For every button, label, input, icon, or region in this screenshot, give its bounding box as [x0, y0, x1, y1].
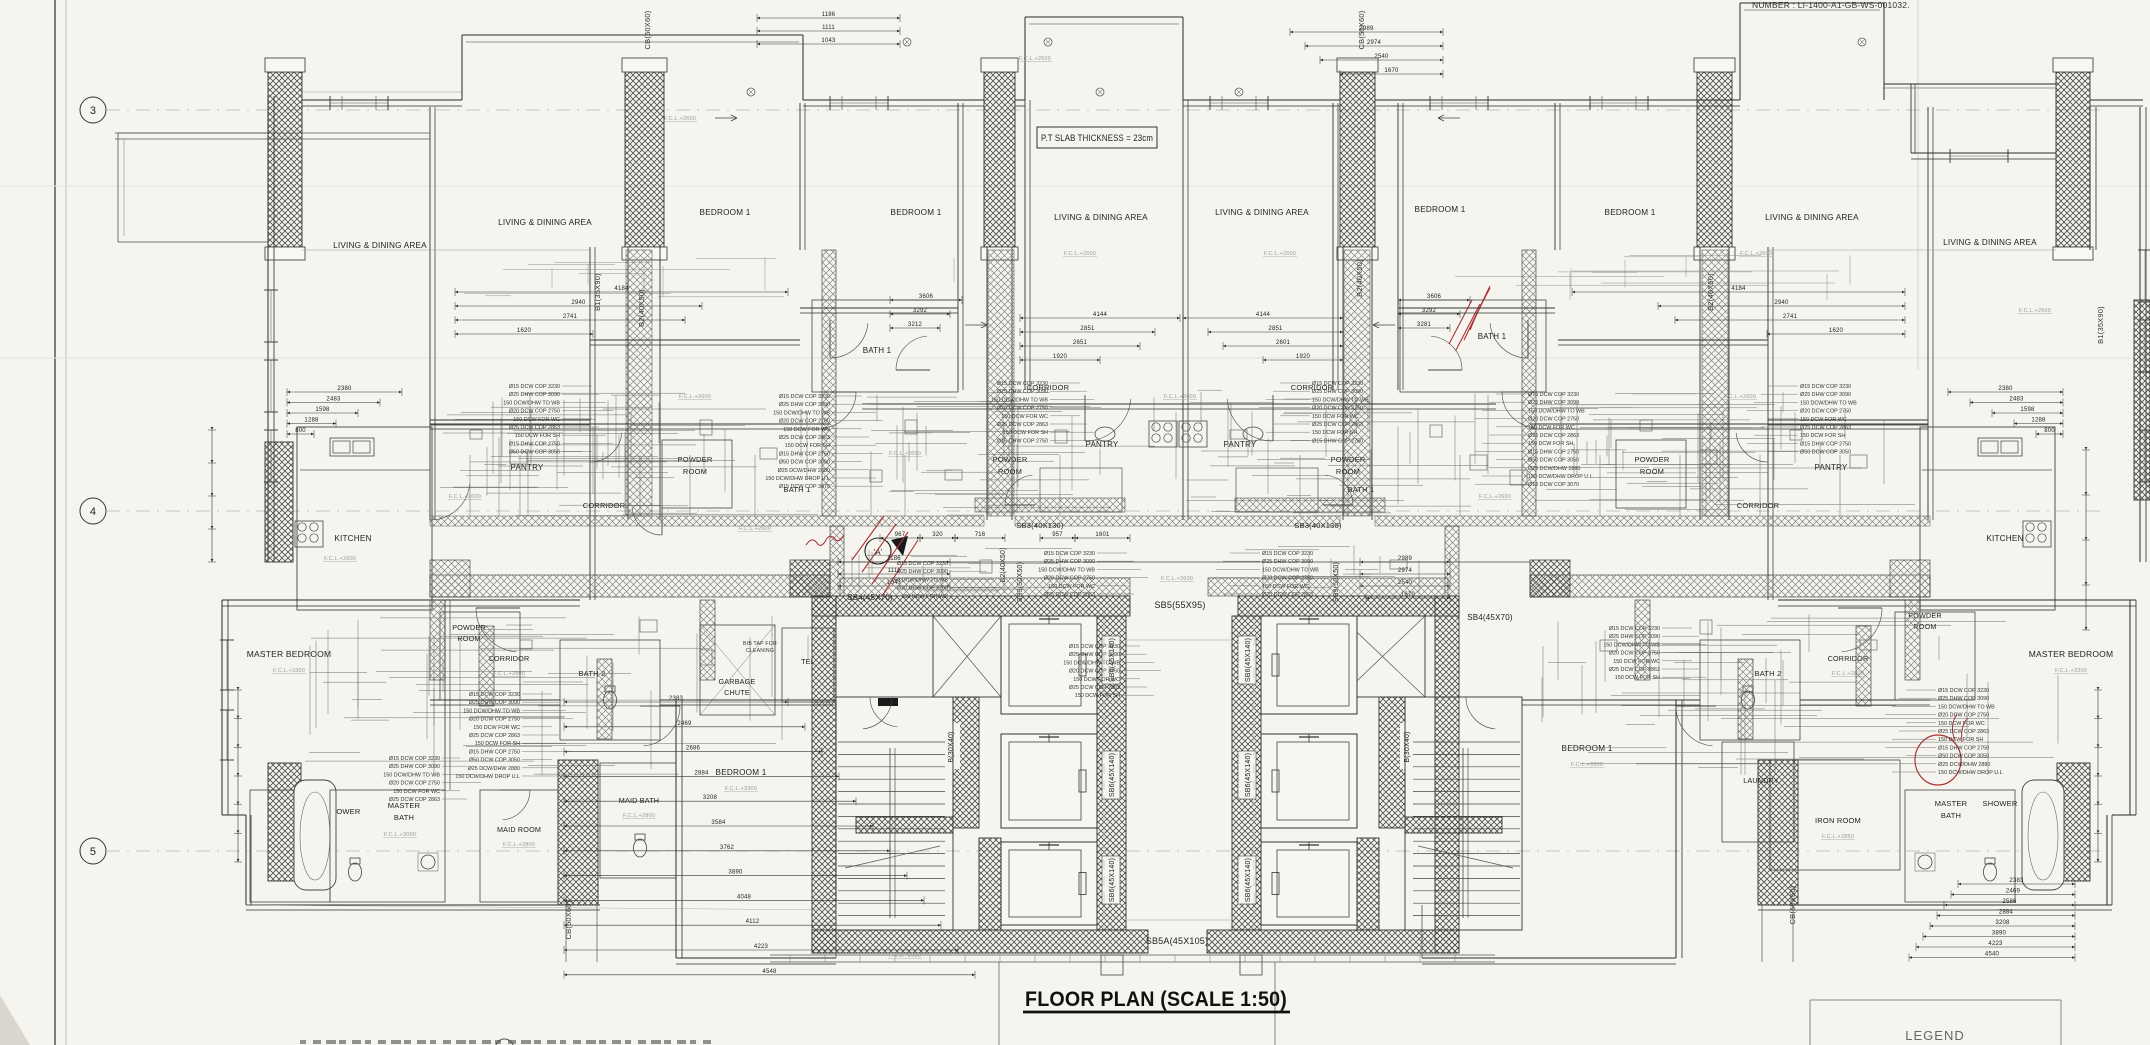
svg-text:3208: 3208	[1995, 920, 2010, 926]
svg-text:LAUNDRY: LAUNDRY	[1743, 776, 1779, 785]
svg-text:BEDROOM 1: BEDROOM 1	[1415, 205, 1466, 214]
svg-text:Ø25 DCW/DHW 2880: Ø25 DCW/DHW 2880	[1528, 466, 1580, 472]
svg-text:Ø25 DCW COP 2863: Ø25 DCW COP 2863	[1312, 422, 1363, 428]
svg-text:SB5(55X95): SB5(55X95)	[1154, 600, 1205, 610]
svg-text:150 DCW/DHW DROP U.L: 150 DCW/DHW DROP U.L	[1528, 474, 1593, 480]
svg-text:Ø15 DCW COP 3230: Ø15 DCW COP 3230	[997, 381, 1048, 387]
svg-text:150 DCW FOR SH: 150 DCW FOR SH	[515, 433, 560, 439]
svg-text:BATH: BATH	[394, 813, 414, 822]
svg-text:4048: 4048	[737, 894, 752, 900]
svg-text:150 DCW/DHW TO WB: 150 DCW/DHW TO WB	[1528, 408, 1585, 414]
svg-text:F.C.L.+2600: F.C.L.+2600	[739, 526, 771, 532]
svg-text:Ø20 DCW COP 2750: Ø20 DCW COP 2750	[1069, 669, 1120, 675]
svg-text:F.C.L.+2600: F.C.L.+2600	[1724, 394, 1756, 400]
svg-text:Ø15 DCW COP 3070: Ø15 DCW COP 3070	[1528, 482, 1579, 488]
svg-text:Ø25 DCW COP 2863: Ø25 DCW COP 2863	[1044, 592, 1095, 598]
svg-text:B1(35X90): B1(35X90)	[2096, 306, 2105, 344]
svg-text:4223: 4223	[754, 944, 769, 950]
svg-text:F.C.L.+3000: F.C.L.+3000	[384, 832, 416, 838]
svg-text:2741: 2741	[563, 314, 578, 320]
svg-text:Ø15 DHW COP 2750: Ø15 DHW COP 2750	[997, 438, 1048, 444]
svg-text:150 DCW/DHW TO WB: 150 DCW/DHW TO WB	[1312, 397, 1369, 403]
svg-text:Ø25 DCW COP 2863: Ø25 DCW COP 2863	[469, 733, 520, 739]
svg-text:1620: 1620	[517, 328, 532, 334]
svg-text:B2(40X50): B2(40X50)	[637, 289, 646, 327]
svg-text:CB(50X60): CB(50X60)	[643, 10, 652, 49]
svg-text:2989: 2989	[1359, 26, 1374, 32]
svg-text:150 DCW/DHW DROP U.L: 150 DCW/DHW DROP U.L	[1938, 770, 2003, 776]
svg-text:150 DCW/DHW TO WB: 150 DCW/DHW TO WB	[1063, 660, 1120, 666]
svg-text:CHUTE: CHUTE	[724, 688, 750, 697]
svg-text:Ø25 DHW COP 3090: Ø25 DHW COP 3090	[1528, 400, 1579, 406]
svg-text:716: 716	[975, 532, 986, 538]
svg-text:150 DCW/DHW TO WB: 150 DCW/DHW TO WB	[891, 577, 948, 583]
svg-text:Ø15 DCW COP 3230: Ø15 DCW COP 3230	[1069, 644, 1120, 650]
svg-text:Ø15 DCW COP 3230: Ø15 DCW COP 3230	[1312, 381, 1363, 387]
svg-text:Ø15 DCW COP 3070: Ø15 DCW COP 3070	[779, 484, 830, 490]
svg-text:3606: 3606	[919, 294, 934, 300]
svg-text:4184: 4184	[1731, 286, 1746, 292]
svg-text:150 DCW FOR WC: 150 DCW FOR WC	[901, 594, 948, 600]
svg-text:B(30X40): B(30X40)	[948, 731, 955, 762]
svg-text:Ø15 DHW COP 2750: Ø15 DHW COP 2750	[1938, 745, 1989, 751]
svg-text:MAID BATH: MAID BATH	[619, 796, 659, 805]
svg-text:F.C.L.+2600: F.C.L.+2600	[1161, 576, 1193, 582]
svg-text:Ø25 DHW COP 3090: Ø25 DHW COP 3090	[997, 389, 1048, 395]
svg-text:BEDROOM 1: BEDROOM 1	[1562, 744, 1613, 753]
svg-text:CB(50X60): CB(50X60)	[1788, 885, 1797, 924]
svg-text:1598: 1598	[315, 407, 330, 413]
svg-text:Ø15 DCW COP 3230: Ø15 DCW COP 3230	[1609, 626, 1660, 632]
svg-text:2540: 2540	[1374, 54, 1389, 60]
svg-text:957: 957	[1052, 532, 1063, 538]
svg-text:F.C.L.+2850: F.C.L.+2850	[1822, 834, 1854, 840]
svg-text:CORRIDOR: CORRIDOR	[583, 501, 626, 510]
svg-text:1601: 1601	[1095, 532, 1110, 538]
svg-text:1288: 1288	[304, 418, 319, 424]
svg-text:1186: 1186	[822, 12, 836, 18]
svg-text:320: 320	[932, 532, 943, 538]
svg-text:Ø25 DCW/DHW 2880: Ø25 DCW/DHW 2880	[1938, 762, 1990, 768]
svg-text:SB3(40X130): SB3(40X130)	[1294, 521, 1342, 530]
svg-text:LEGEND: LEGEND	[1905, 1028, 1964, 1043]
svg-text:Ø25 DHW COP 3090: Ø25 DHW COP 3090	[1609, 634, 1660, 640]
svg-text:150 DCW FOR SH: 150 DCW FOR SH	[785, 443, 830, 449]
svg-text:Ø20 DCW COP 2750: Ø20 DCW COP 2750	[1800, 409, 1851, 415]
svg-text:Ø25 DCW COP 2863: Ø25 DCW COP 2863	[997, 422, 1048, 428]
svg-text:BATH 1: BATH 1	[863, 346, 892, 355]
svg-text:Ø50 DCW COP 3050: Ø50 DCW COP 3050	[1528, 458, 1579, 464]
svg-text:F.C.L.+2600: F.C.L.+2600	[2019, 308, 2051, 314]
svg-text:SB6(45X140): SB6(45X140)	[1109, 753, 1116, 797]
svg-text:150 DCW FOR WC: 150 DCW FOR WC	[393, 789, 440, 795]
svg-text:2483: 2483	[2009, 397, 2024, 403]
svg-text:4112: 4112	[746, 919, 760, 925]
svg-text:3281: 3281	[1417, 322, 1432, 328]
svg-text:Ø25 DHW COP 3090: Ø25 DHW COP 3090	[897, 569, 948, 575]
svg-text:3890: 3890	[728, 870, 743, 876]
svg-text:3208: 3208	[703, 795, 718, 801]
svg-text:3212: 3212	[908, 322, 923, 328]
svg-text:1598: 1598	[2020, 407, 2035, 413]
svg-text:BEDROOM 1: BEDROOM 1	[1605, 208, 1656, 217]
svg-text:MASTER: MASTER	[1935, 799, 1968, 808]
svg-text:IRON ROOM: IRON ROOM	[1815, 816, 1861, 825]
svg-text:150 DCW FOR WC: 150 DCW FOR WC	[1528, 425, 1575, 431]
svg-text:2974: 2974	[1367, 40, 1382, 46]
svg-text:Ø15 DHW COP 2750: Ø15 DHW COP 2750	[509, 441, 560, 447]
svg-text:Ø15 DCW COP 3230: Ø15 DCW COP 3230	[1262, 551, 1313, 557]
svg-text:POWDER: POWDER	[678, 455, 713, 464]
svg-text:150 DCW FOR WC: 150 DCW FOR WC	[1312, 414, 1359, 420]
svg-text:F.C.L.+3300: F.C.L.+3300	[725, 786, 757, 792]
svg-text:SB5A(45X105): SB5A(45X105)	[1146, 936, 1208, 946]
svg-text:MASTER BEDROOM: MASTER BEDROOM	[2029, 649, 2114, 659]
svg-text:150 DCW/DHW TO WB: 150 DCW/DHW TO WB	[1262, 567, 1319, 573]
svg-text:BEDROOM 1: BEDROOM 1	[716, 768, 767, 777]
svg-text:Ø25 DHW COP 3090: Ø25 DHW COP 3090	[1800, 392, 1851, 398]
svg-text:BEDROOM 1: BEDROOM 1	[891, 208, 942, 217]
svg-text:LIVING & DINING AREA: LIVING & DINING AREA	[1054, 213, 1148, 222]
svg-text:150 DCW FOR SH: 150 DCW FOR SH	[1800, 433, 1845, 439]
svg-text:ROOM: ROOM	[1640, 467, 1664, 476]
svg-text:2483: 2483	[326, 397, 341, 403]
svg-text:150 DCW FOR WC: 150 DCW FOR WC	[1073, 677, 1120, 683]
svg-text:2383: 2383	[669, 696, 684, 702]
svg-text:2651: 2651	[1073, 340, 1088, 346]
svg-text:F.C.L.+2600: F.C.L.+2600	[1019, 56, 1051, 62]
svg-text:Ø25 DHW COP 3090: Ø25 DHW COP 3090	[389, 764, 440, 770]
svg-text:2989: 2989	[1398, 556, 1413, 562]
svg-text:150 DCW FOR SH: 150 DCW FOR SH	[1528, 441, 1573, 447]
svg-text:Ø20 DCW COP 2750: Ø20 DCW COP 2750	[509, 409, 560, 415]
svg-text:4144: 4144	[1256, 312, 1271, 318]
svg-text:F.C.L.+3300: F.C.L.+3300	[1571, 762, 1603, 768]
svg-text:4223: 4223	[1988, 941, 2003, 947]
svg-text:Ø25 DCW COP 2863: Ø25 DCW COP 2863	[1262, 592, 1313, 598]
svg-text:LIVING & DINING AREA: LIVING & DINING AREA	[1765, 213, 1859, 222]
svg-text:Ø25 DCW COP 2863: Ø25 DCW COP 2863	[1528, 433, 1579, 439]
svg-text:CORRIDOR: CORRIDOR	[489, 654, 530, 663]
svg-text:4548: 4548	[762, 969, 777, 975]
svg-text:3762: 3762	[720, 845, 735, 851]
svg-text:Ø20 DCW COP 2750: Ø20 DCW COP 2750	[1938, 713, 1989, 719]
svg-text:F.C.L.+3300: F.C.L.+3300	[2055, 668, 2087, 674]
svg-text:1043: 1043	[821, 38, 836, 44]
svg-text:Ø25 DHW COP 3090: Ø25 DHW COP 3090	[779, 402, 830, 408]
svg-text:Ø25 DCW COP 2863: Ø25 DCW COP 2863	[1609, 667, 1660, 673]
svg-text:1111: 1111	[822, 25, 835, 31]
svg-text:Ø15 DCW COP 3230: Ø15 DCW COP 3230	[1528, 392, 1579, 398]
svg-text:3606: 3606	[1427, 294, 1442, 300]
svg-text:2380: 2380	[337, 386, 352, 392]
svg-text:150 DCW FOR WC: 150 DCW FOR WC	[1048, 584, 1095, 590]
svg-text:LIVING & DINING AREA: LIVING & DINING AREA	[1943, 238, 2037, 247]
svg-text:PANTRY: PANTRY	[1086, 440, 1119, 449]
svg-text:POWDER: POWDER	[1635, 455, 1670, 464]
svg-text:Ø25 DCW COP 2863: Ø25 DCW COP 2863	[1069, 685, 1120, 691]
svg-text:P.T SLAB THICKNESS = 23cm: P.T SLAB THICKNESS = 23cm	[1041, 133, 1153, 144]
svg-text:BATH: BATH	[1941, 811, 1961, 820]
svg-text:2469: 2469	[2006, 889, 2021, 895]
svg-text:Ø15 DCW COP 3230: Ø15 DCW COP 3230	[897, 561, 948, 567]
svg-text:FLOOR PLAN (SCALE 1:50): FLOOR PLAN (SCALE 1:50)	[1025, 987, 1287, 1011]
svg-text:2380: 2380	[1998, 386, 2013, 392]
svg-text:4540: 4540	[1985, 952, 2000, 958]
svg-text:4184: 4184	[614, 286, 629, 292]
svg-text:967: 967	[895, 532, 906, 538]
svg-text:Ø15 DHW COP 2750: Ø15 DHW COP 2750	[469, 749, 520, 755]
svg-text:Ø25 DCW COP 2863: Ø25 DCW COP 2863	[1938, 729, 1989, 735]
svg-text:SB6(45X140): SB6(45X140)	[1245, 753, 1252, 797]
svg-text:150 DCW/DHW TO WB: 150 DCW/DHW TO WB	[503, 400, 560, 406]
svg-text:CB(50X60): CB(50X60)	[564, 900, 573, 939]
svg-text:F.C.L.+2600: F.C.L.+2600	[1479, 494, 1511, 500]
svg-text:Ø25 DCW COP 2863: Ø25 DCW COP 2863	[779, 435, 830, 441]
svg-text:3584: 3584	[711, 820, 726, 826]
svg-text:SHOWER: SHOWER	[1983, 799, 2018, 808]
svg-text:150 DCW FOR WC: 150 DCW FOR WC	[1938, 721, 1985, 727]
svg-text:Ø50 DCW COP 3050: Ø50 DCW COP 3050	[779, 460, 830, 466]
svg-text:Ø25 DHW COP 3090: Ø25 DHW COP 3090	[1312, 389, 1363, 395]
svg-text:Ø15 DHW COP 2750: Ø15 DHW COP 2750	[779, 451, 830, 457]
svg-text:CORRIDOR: CORRIDOR	[1737, 501, 1780, 510]
svg-text:F.C.L.+2600: F.C.L.+2600	[1264, 251, 1296, 257]
svg-text:Ø15 DHW COP 2750: Ø15 DHW COP 2750	[1528, 449, 1579, 455]
svg-text:150 DCW/DHW TO WB: 150 DCW/DHW TO WB	[463, 708, 520, 714]
svg-text:F.C.L.+2800: F.C.L.+2800	[503, 842, 535, 848]
svg-text:2940: 2940	[571, 300, 586, 306]
svg-text:800: 800	[295, 428, 306, 434]
svg-text:ROOM: ROOM	[457, 634, 480, 643]
svg-text:PANTRY: PANTRY	[1815, 463, 1848, 472]
svg-text:1920: 1920	[1053, 354, 1068, 360]
svg-text:F.C.L.+2800: F.C.L.+2800	[493, 671, 525, 677]
svg-text:Ø50 DCW COP 3050: Ø50 DCW COP 3050	[1938, 754, 1989, 760]
svg-text:Ø20 DCW COP 2750: Ø20 DCW COP 2750	[389, 781, 440, 787]
svg-text:Ø15 DCW COP 3230: Ø15 DCW COP 3230	[1800, 384, 1851, 390]
svg-text:1620: 1620	[1829, 328, 1844, 334]
svg-text:2940: 2940	[1774, 300, 1789, 306]
svg-text:Ø15 DHW COP 2750: Ø15 DHW COP 2750	[1800, 441, 1851, 447]
svg-text:F.C.L.+3300: F.C.L.+3300	[273, 668, 305, 674]
svg-text:B2(40X50): B2(40X50)	[1000, 547, 1007, 582]
svg-text:SB6(45X140): SB6(45X140)	[1245, 638, 1252, 682]
svg-text:SB3(40X130): SB3(40X130)	[1016, 521, 1064, 530]
svg-text:Ø25 DCW COP 2863: Ø25 DCW COP 2863	[389, 797, 440, 803]
svg-text:150 DCW FOR WC: 150 DCW FOR WC	[1001, 414, 1048, 420]
svg-text:BATH 1: BATH 1	[1348, 485, 1375, 494]
svg-text:Ø25 DCW/DHW 2880: Ø25 DCW/DHW 2880	[778, 468, 830, 474]
svg-text:NUMBER : LI-1400-A1-GB-WS-0010: NUMBER : LI-1400-A1-GB-WS-001032.	[1752, 0, 1910, 10]
svg-text:2601: 2601	[1276, 340, 1291, 346]
svg-text:ROOM: ROOM	[998, 467, 1022, 476]
svg-text:5: 5	[90, 846, 96, 858]
svg-text:KITCHEN: KITCHEN	[334, 534, 371, 543]
svg-text:1288: 1288	[2031, 418, 2046, 424]
svg-text:POWDER: POWDER	[993, 455, 1028, 464]
svg-text:Ø20 DCW COP 2750: Ø20 DCW COP 2750	[1044, 576, 1095, 582]
svg-text:Ø50 DCW COP 3050: Ø50 DCW COP 3050	[469, 758, 520, 764]
svg-text:Ø25 DCW COP 2863: Ø25 DCW COP 2863	[1800, 425, 1851, 431]
svg-text:ROOM: ROOM	[683, 467, 707, 476]
svg-text:F.C.L.+2600: F.C.L.+2600	[679, 394, 711, 400]
svg-text:150 DCW FOR SH: 150 DCW FOR SH	[1312, 430, 1357, 436]
svg-text:BEDROOM 1: BEDROOM 1	[700, 208, 751, 217]
svg-text:150 DCW/DHW TO WB: 150 DCW/DHW TO WB	[1800, 400, 1857, 406]
svg-text:4: 4	[90, 506, 96, 518]
svg-text:F.C.L.+2800: F.C.L.+2800	[623, 813, 655, 819]
svg-text:SB6(45X140): SB6(45X140)	[1245, 858, 1252, 902]
svg-text:3: 3	[90, 105, 96, 117]
svg-text:Ø25 DCW COP 2863: Ø25 DCW COP 2863	[509, 425, 560, 431]
svg-text:Ø50 DCW COP 3050: Ø50 DCW COP 3050	[1800, 450, 1851, 456]
svg-text:2851: 2851	[1268, 326, 1283, 332]
svg-text:Ø25 DHW COP 3090: Ø25 DHW COP 3090	[1069, 652, 1120, 658]
svg-text:Ø25 DHW COP 3090: Ø25 DHW COP 3090	[1044, 559, 1095, 565]
svg-text:2469: 2469	[677, 721, 692, 727]
svg-text:800: 800	[2044, 428, 2055, 434]
svg-text:2884: 2884	[1999, 910, 2014, 916]
svg-text:150 DCW FOR WC: 150 DCW FOR WC	[1262, 584, 1309, 590]
svg-text:BATH 2: BATH 2	[1755, 669, 1782, 678]
svg-text:MAID ROOM: MAID ROOM	[497, 825, 541, 834]
svg-text:Ø20 DCW COP 2750: Ø20 DCW COP 2750	[1312, 406, 1363, 412]
svg-text:Ø15 DCW COP 3230: Ø15 DCW COP 3230	[469, 692, 520, 698]
svg-text:Ø20 DCW COP 2750: Ø20 DCW COP 2750	[1609, 651, 1660, 657]
svg-text:1670: 1670	[1384, 68, 1399, 74]
svg-text:2741: 2741	[1783, 314, 1798, 320]
svg-text:2851: 2851	[1080, 326, 1095, 332]
svg-text:Ø20 DCW COP 2750: Ø20 DCW COP 2750	[779, 419, 830, 425]
svg-text:2686: 2686	[686, 746, 701, 752]
svg-text:F.C.L.+2600: F.C.L.+2600	[889, 953, 921, 959]
svg-text:2884: 2884	[694, 770, 709, 776]
svg-text:LIVING & DINING AREA: LIVING & DINING AREA	[1215, 208, 1309, 217]
svg-text:3890: 3890	[1992, 931, 2007, 937]
svg-text:F.C.L.+2600: F.C.L.+2600	[664, 116, 696, 122]
svg-text:150 DCW/DHW DROP U.L: 150 DCW/DHW DROP U.L	[455, 774, 520, 780]
svg-text:Ø15 DCW COP 3230: Ø15 DCW COP 3230	[1044, 551, 1095, 557]
svg-text:150 DCW/DHW DROP U.L: 150 DCW/DHW DROP U.L	[765, 476, 830, 482]
svg-text:150 DCW/DHW TO WB: 150 DCW/DHW TO WB	[991, 397, 1048, 403]
svg-text:Ø20 DCW COP 2750: Ø20 DCW COP 2750	[469, 717, 520, 723]
svg-text:150 DCW FOR SH: 150 DCW FOR SH	[1075, 693, 1120, 699]
svg-text:Ø15 DHW COP 2750: Ø15 DHW COP 2750	[1312, 438, 1363, 444]
svg-text:Ø25 DHW COP 3090: Ø25 DHW COP 3090	[1938, 696, 1989, 702]
svg-text:4144: 4144	[1093, 312, 1108, 318]
svg-text:1920: 1920	[1296, 354, 1311, 360]
svg-text:Ø15 DCW COP 3230: Ø15 DCW COP 3230	[1938, 688, 1989, 694]
svg-text:2586: 2586	[2002, 899, 2017, 905]
svg-text:150 DCW/DHW TO WB: 150 DCW/DHW TO WB	[1938, 704, 1995, 710]
svg-text:SB6(45X140): SB6(45X140)	[1109, 858, 1116, 902]
svg-text:LIVING & DINING AREA: LIVING & DINING AREA	[498, 218, 592, 227]
svg-text:F.C.L.+2600: F.C.L.+2600	[1064, 251, 1096, 257]
svg-text:Ø15 DCW COP 3230: Ø15 DCW COP 3230	[509, 384, 560, 390]
svg-text:F.C.L.+2600: F.C.L.+2600	[1164, 394, 1196, 400]
svg-text:Ø25 DHW COP 3090: Ø25 DHW COP 3090	[1262, 559, 1313, 565]
svg-text:Ø50 DCW COP 3050: Ø50 DCW COP 3050	[509, 450, 560, 456]
svg-text:150 DCW/DHW TO WB: 150 DCW/DHW TO WB	[383, 772, 440, 778]
svg-text:F.C.L.+2600: F.C.L.+2600	[1740, 251, 1772, 257]
svg-text:Ø25 DCW/DHW 2880: Ø25 DCW/DHW 2880	[468, 766, 520, 772]
svg-text:150 DCW FOR WC: 150 DCW FOR WC	[783, 427, 830, 433]
svg-text:F.C.L.+2600: F.C.L.+2600	[324, 556, 356, 562]
svg-text:2383: 2383	[2009, 878, 2024, 884]
svg-text:B2(40X50): B2(40X50)	[1355, 259, 1364, 297]
svg-text:KITCHEN: KITCHEN	[1986, 534, 2023, 543]
svg-text:150 DCW/DHW TO WB: 150 DCW/DHW TO WB	[773, 410, 830, 416]
svg-text:LIVING & DINING AREA: LIVING & DINING AREA	[333, 241, 427, 250]
svg-text:Ø15 DCW COP 3230: Ø15 DCW COP 3230	[779, 394, 830, 400]
svg-text:MASTER BEDROOM: MASTER BEDROOM	[247, 649, 332, 659]
svg-text:150 DCW FOR SH: 150 DCW FOR SH	[1003, 430, 1048, 436]
svg-text:Ø20 DCW COP 2750: Ø20 DCW COP 2750	[1528, 417, 1579, 423]
svg-text:SB4(45X70): SB4(45X70)	[1467, 613, 1513, 622]
svg-text:150 DCW/DHW TO WB: 150 DCW/DHW TO WB	[1038, 567, 1095, 573]
svg-text:150 DCW FOR WC: 150 DCW FOR WC	[473, 725, 520, 731]
